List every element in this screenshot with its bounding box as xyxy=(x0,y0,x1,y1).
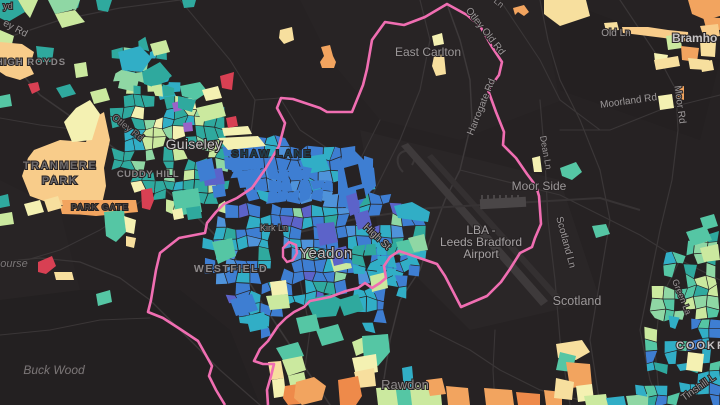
svg-text:PARK: PARK xyxy=(42,175,78,187)
svg-text:Yeadon: Yeadon xyxy=(299,245,352,262)
svg-text:Buck Wood: Buck Wood xyxy=(23,363,85,377)
svg-text:Airport: Airport xyxy=(463,247,499,261)
svg-text:Scotland: Scotland xyxy=(553,294,602,308)
svg-text:Kirk Ln: Kirk Ln xyxy=(260,223,288,233)
svg-text:COOKR: COOKR xyxy=(676,340,720,352)
svg-text:yd: yd xyxy=(3,1,13,11)
svg-text:Rawdon: Rawdon xyxy=(381,377,429,392)
svg-text:Old Ln: Old Ln xyxy=(601,28,630,39)
svg-text:PARK GATE: PARK GATE xyxy=(71,202,129,212)
svg-text:TRANMERE: TRANMERE xyxy=(23,160,97,172)
svg-text:Guiseley: Guiseley xyxy=(166,136,223,152)
svg-text:Moor Side: Moor Side xyxy=(512,179,567,193)
svg-text:Bramho: Bramho xyxy=(672,31,717,45)
svg-text:WESTFIELD: WESTFIELD xyxy=(194,263,268,275)
svg-text:HIGH ROYDS: HIGH ROYDS xyxy=(0,57,66,68)
svg-text:SHAW LANE: SHAW LANE xyxy=(232,148,313,160)
svg-text:ourse: ourse xyxy=(0,258,28,270)
svg-text:CUDDY HILL: CUDDY HILL xyxy=(117,169,179,180)
svg-text:East Carlton: East Carlton xyxy=(395,45,461,59)
